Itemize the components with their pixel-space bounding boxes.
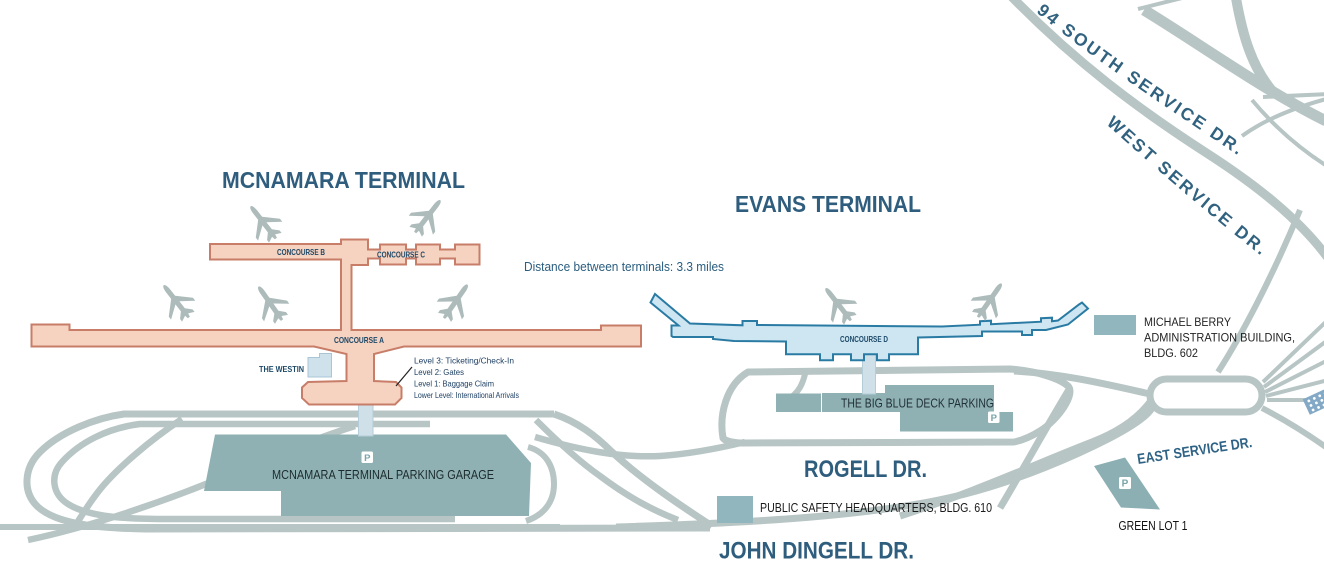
svg-text:Level 2: Gates: Level 2: Gates [414,368,464,377]
svg-text:THE WESTIN: THE WESTIN [259,365,304,374]
svg-text:CONCOURSE C: CONCOURSE C [377,251,425,260]
svg-text:CONCOURSE B: CONCOURSE B [277,248,325,257]
svg-text:BLDG. 602: BLDG. 602 [1144,346,1198,360]
svg-text:Lower Level: International Arr: Lower Level: International Arrivals [414,391,519,400]
svg-text:EVANS TERMINAL: EVANS TERMINAL [735,191,921,217]
svg-text:JOHN DINGELL DR.: JOHN DINGELL DR. [719,538,914,565]
svg-text:THE BIG BLUE DECK PARKING: THE BIG BLUE DECK PARKING [841,397,994,411]
svg-text:P: P [991,413,998,424]
svg-text:CONCOURSE A: CONCOURSE A [334,336,384,345]
svg-text:Level 1: Baggage Claim: Level 1: Baggage Claim [414,380,494,389]
svg-text:EAST SERVICE DR.: EAST SERVICE DR. [1136,435,1253,468]
svg-text:P: P [364,453,371,464]
svg-text:MCNAMARA TERMINAL PARKING GARA: MCNAMARA TERMINAL PARKING GARAGE [272,467,494,482]
svg-text:P: P [1122,479,1129,490]
svg-text:ADMINISTRATION BUILDING,: ADMINISTRATION BUILDING, [1144,331,1295,345]
svg-text:ROGELL DR.: ROGELL DR. [804,456,927,483]
svg-text:CONCOURSE D: CONCOURSE D [840,335,888,344]
svg-text:Level 3: Ticketing/Check-In: Level 3: Ticketing/Check-In [414,357,514,366]
svg-text:MICHAEL BERRY: MICHAEL BERRY [1144,315,1231,329]
svg-text:PUBLIC SAFETY HEADQUARTERS, BL: PUBLIC SAFETY HEADQUARTERS, BLDG. 610 [760,501,992,515]
svg-text:Distance between terminals: 3.: Distance between terminals: 3.3 miles [524,260,724,274]
svg-text:GREEN LOT 1: GREEN LOT 1 [1119,519,1188,533]
svg-text:MCNAMARA TERMINAL: MCNAMARA TERMINAL [222,167,465,193]
